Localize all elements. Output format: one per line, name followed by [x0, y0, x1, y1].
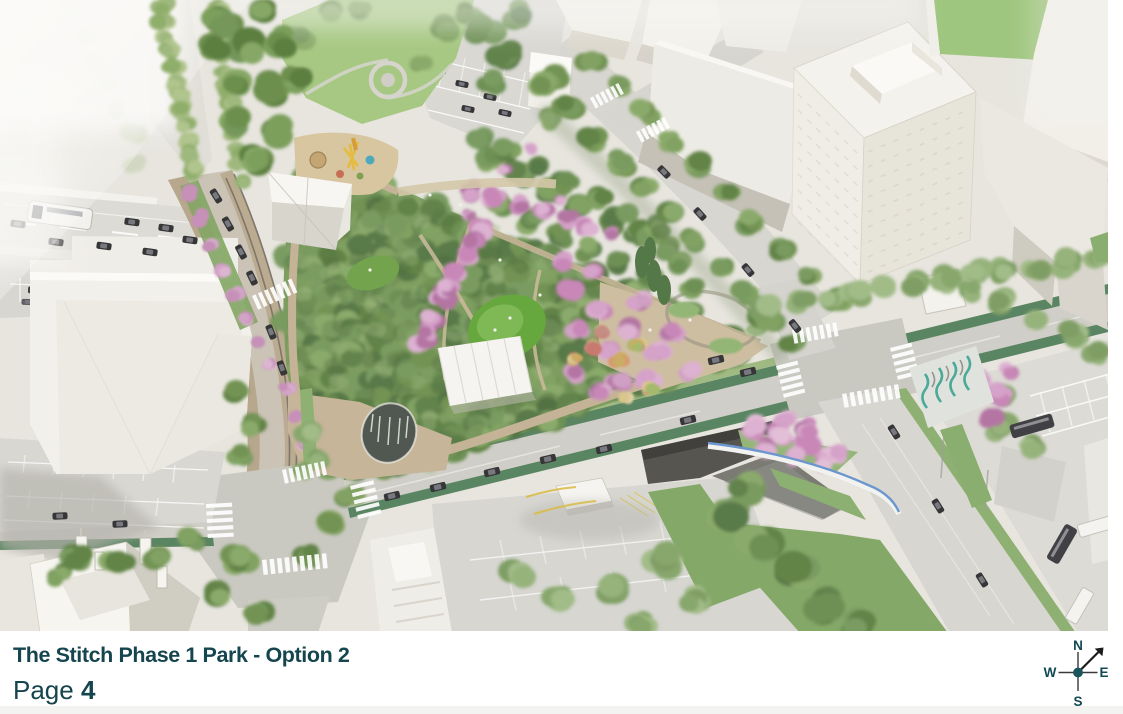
svg-text:N: N	[1073, 638, 1083, 653]
svg-text:The Stitch Phase 1 Park - Opti: The Stitch Phase 1 Park - Option 2	[13, 643, 350, 667]
svg-text:Page 4: Page 4	[13, 675, 96, 705]
svg-text:S: S	[1073, 694, 1082, 709]
svg-text:W: W	[1044, 665, 1057, 680]
svg-text:E: E	[1099, 665, 1108, 680]
